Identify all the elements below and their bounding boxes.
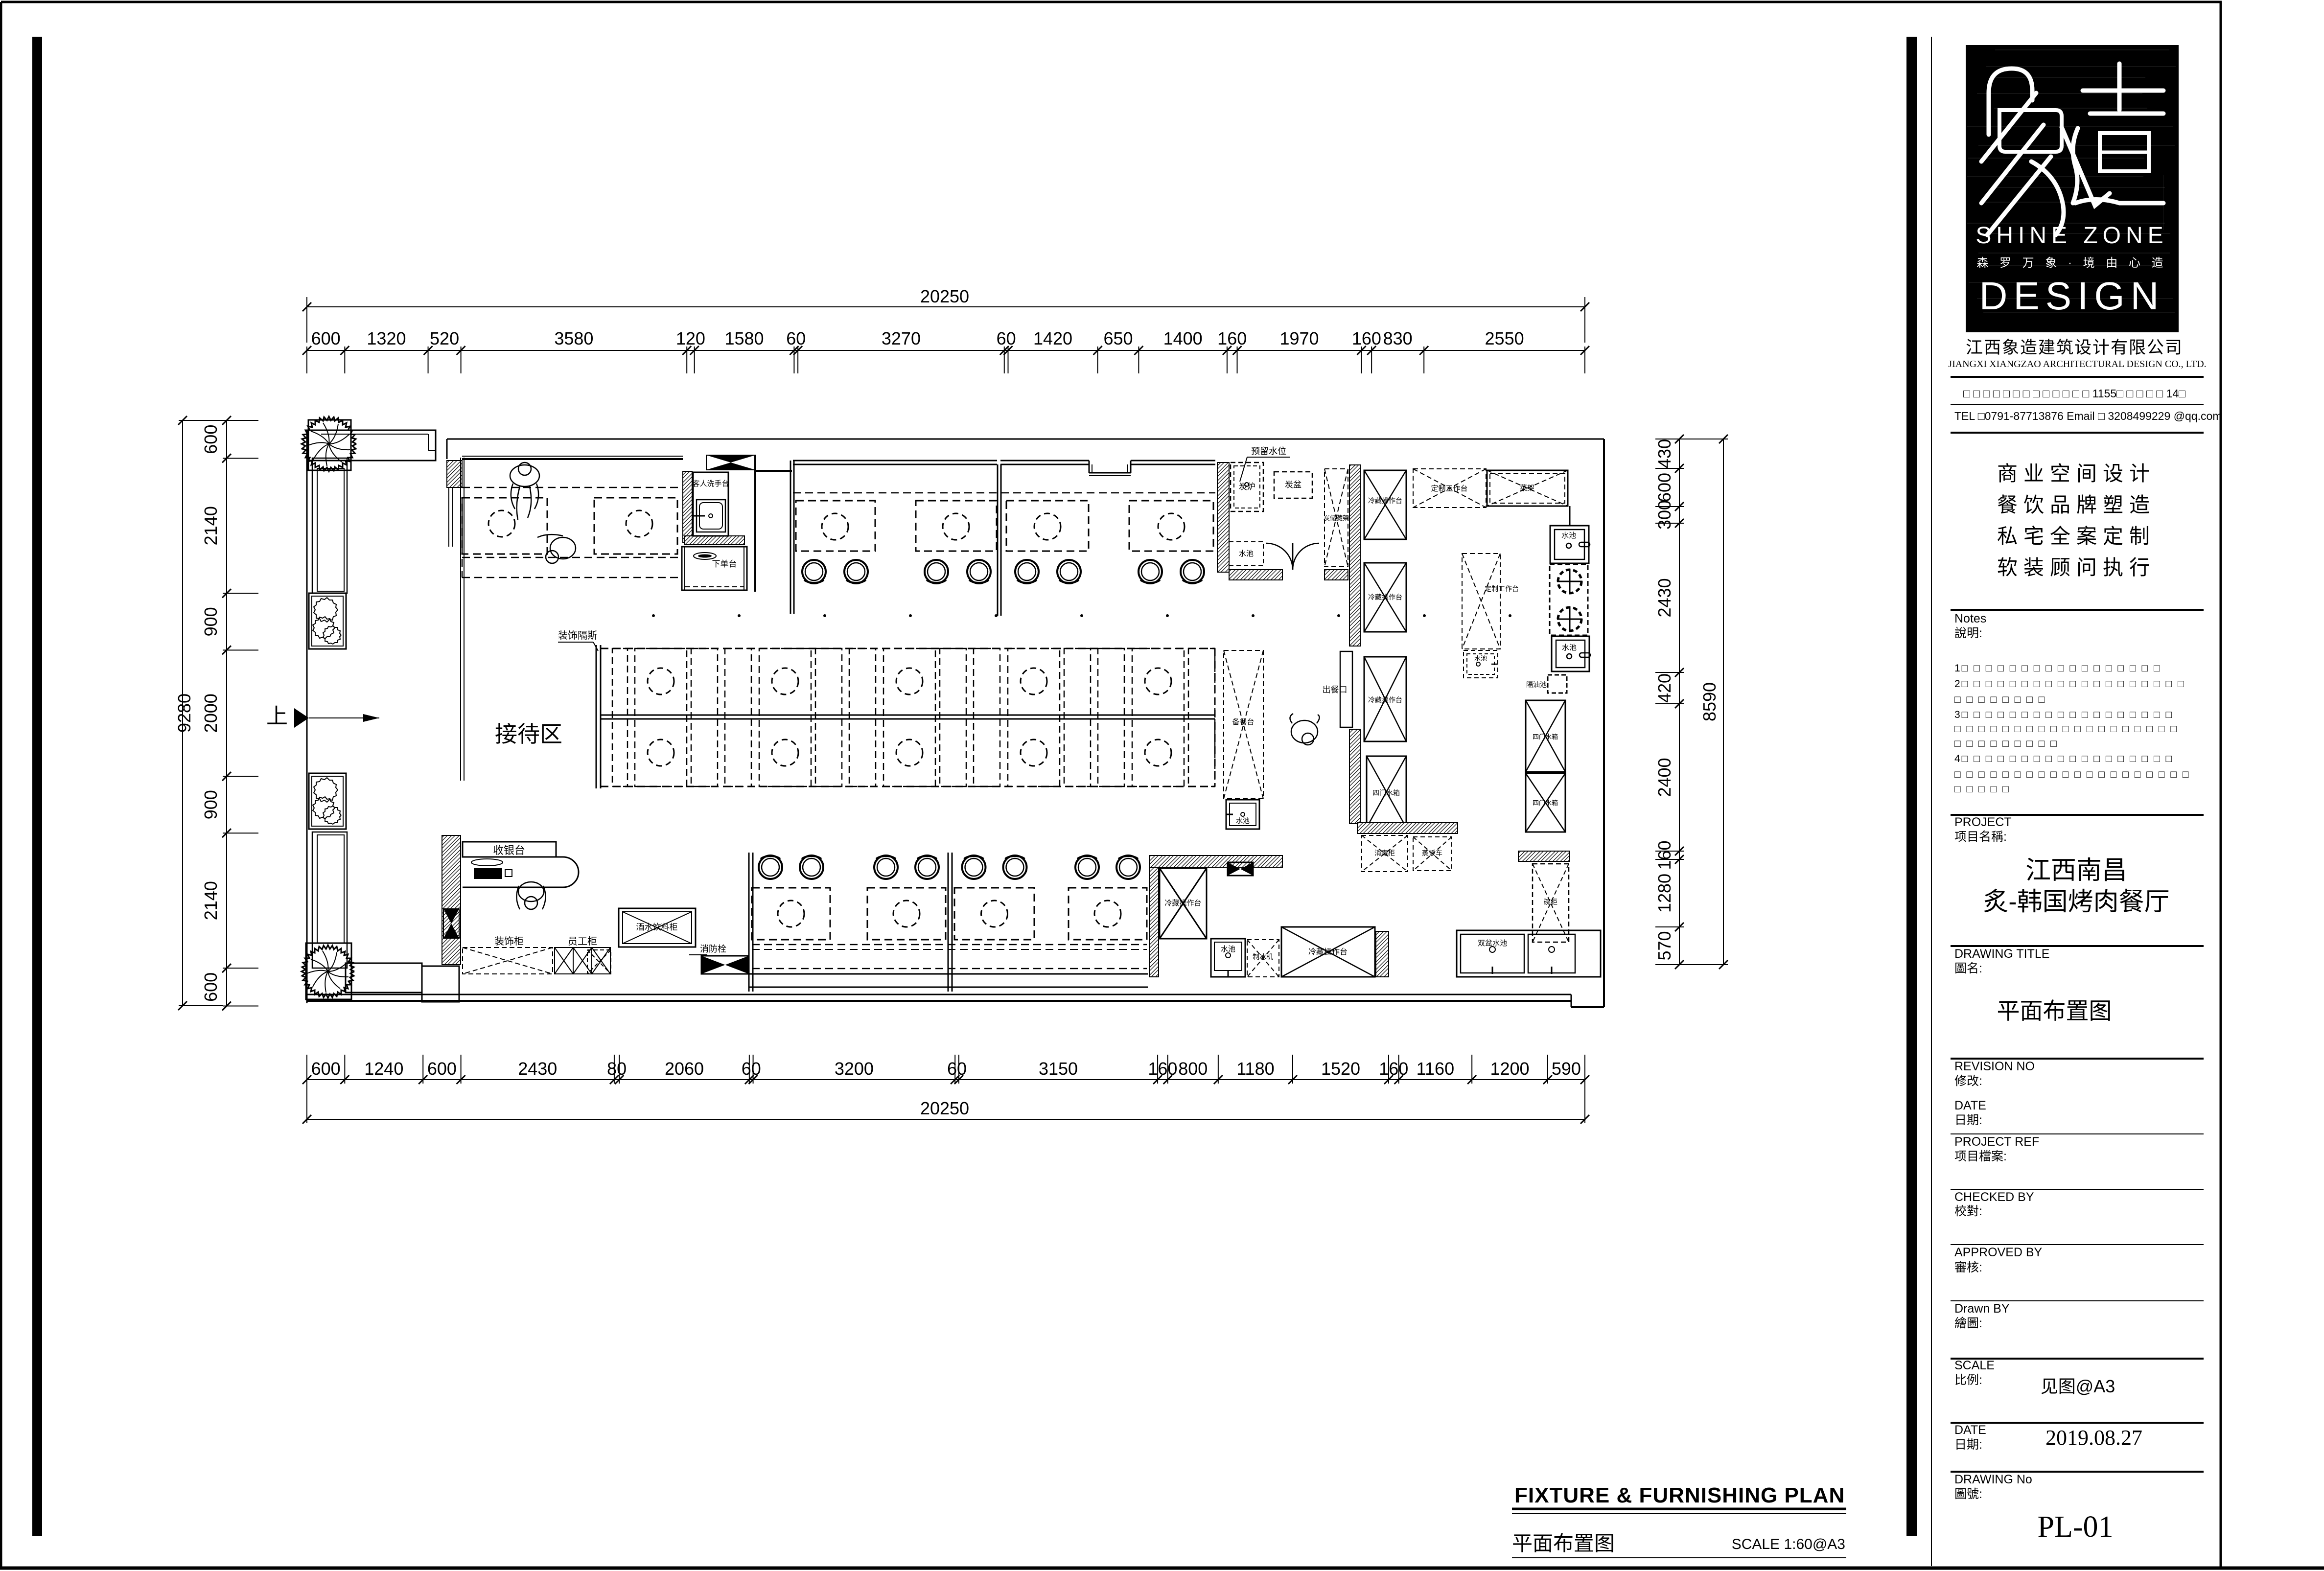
svg-text:520: 520 xyxy=(430,328,459,348)
svg-text:600: 600 xyxy=(1654,473,1674,502)
svg-text:下单台: 下单台 xyxy=(712,559,737,569)
svg-text:2430: 2430 xyxy=(518,1059,557,1079)
svg-text:圖號:: 圖號: xyxy=(1954,1487,1982,1501)
svg-text:20250: 20250 xyxy=(920,286,969,306)
svg-text:300: 300 xyxy=(1654,500,1674,530)
svg-text:1160: 1160 xyxy=(1417,1059,1454,1079)
svg-text:570: 570 xyxy=(1654,931,1674,960)
svg-text:水池: 水池 xyxy=(1561,531,1576,540)
svg-text:160: 160 xyxy=(1352,328,1381,348)
svg-text:830: 830 xyxy=(1383,328,1413,348)
svg-text:3270: 3270 xyxy=(882,328,921,348)
svg-text:SHINE ZONE: SHINE ZONE xyxy=(1975,223,2168,249)
svg-text:160: 160 xyxy=(1217,328,1247,348)
svg-text:900: 900 xyxy=(201,607,221,636)
svg-text:定制工作台: 定制工作台 xyxy=(1431,485,1467,493)
svg-text:800: 800 xyxy=(1178,1059,1208,1079)
svg-text:Drawn BY: Drawn BY xyxy=(1954,1302,2010,1316)
svg-text:1320: 1320 xyxy=(367,328,406,348)
svg-text:繪圖:: 繪圖: xyxy=(1954,1317,1982,1330)
svg-text:□ □ □ □ □ □ □ □ □ □ □ □ □ 1155: □ □ □ □ □ □ □ □ □ □ □ □ □ 1155□ □ □ □ □ … xyxy=(1963,387,2185,400)
svg-text:APPROVED BY: APPROVED BY xyxy=(1954,1246,2043,1259)
svg-text:炙-韩国烤肉餐厅: 炙-韩国烤肉餐厅 xyxy=(1983,888,2169,916)
svg-text:项目檔案:: 项目檔案: xyxy=(1954,1150,2007,1163)
svg-text:650: 650 xyxy=(1103,328,1133,348)
svg-text:软装顾问执行: 软装顾问执行 xyxy=(1997,556,2156,579)
svg-text:2000: 2000 xyxy=(201,693,221,733)
svg-text:装饰隔斯: 装饰隔斯 xyxy=(558,630,597,641)
svg-text:日期:: 日期: xyxy=(1954,1113,1982,1127)
svg-text:四门水箱: 四门水箱 xyxy=(1372,789,1400,797)
svg-text:蒸饭车: 蒸饭车 xyxy=(1422,849,1442,857)
svg-text:DATE: DATE xyxy=(1954,1423,1986,1437)
svg-text:餐饮品牌塑造: 餐饮品牌塑造 xyxy=(1997,493,2156,516)
svg-text:私宅全案定制: 私宅全案定制 xyxy=(1997,525,2156,548)
svg-text:3580: 3580 xyxy=(554,328,593,348)
svg-text:1180: 1180 xyxy=(1236,1059,1274,1079)
svg-text:备餐台: 备餐台 xyxy=(1232,718,1254,726)
svg-text:60: 60 xyxy=(742,1059,761,1079)
svg-text:420: 420 xyxy=(1654,673,1674,703)
svg-text:□ □ □ □ □ □ □ □ □ □ □ □ □ □ □: □ □ □ □ □ □ □ □ □ □ □ □ □ □ □ □ □ □ □ xyxy=(1954,723,2178,735)
svg-text:FIXTURE & FURNISHING PLAN: FIXTURE & FURNISHING PLAN xyxy=(1514,1483,1845,1507)
svg-text:PL-01: PL-01 xyxy=(2038,1510,2114,1544)
svg-text:2400: 2400 xyxy=(1654,758,1674,797)
svg-text:冷藏操作台: 冷藏操作台 xyxy=(1308,947,1348,956)
svg-text:江西象造建筑设计有限公司: 江西象造建筑设计有限公司 xyxy=(1966,338,2183,357)
svg-text:9280: 9280 xyxy=(174,693,194,733)
svg-text:CHECKED BY: CHECKED BY xyxy=(1954,1190,2034,1204)
svg-text:60: 60 xyxy=(786,328,806,348)
svg-text:江西南昌: 江西南昌 xyxy=(2025,856,2127,885)
svg-text:□ □ □ □ □ □ □ □ □: □ □ □ □ □ □ □ □ □ xyxy=(1954,738,2058,749)
svg-text:隔油池: 隔油池 xyxy=(1526,681,1547,689)
svg-text:2□ □ □ □ □ □ □ □ □ □ □ □ □ □ □: 2□ □ □ □ □ □ □ □ □ □ □ □ □ □ □ □ □ □ □ xyxy=(1954,678,2185,690)
svg-text:2550: 2550 xyxy=(1485,328,1524,348)
svg-text:1400: 1400 xyxy=(1163,328,1203,348)
svg-text:水池: 水池 xyxy=(1221,945,1235,953)
svg-text:1200: 1200 xyxy=(1490,1059,1529,1079)
svg-text:600: 600 xyxy=(201,972,221,1002)
svg-text:冷藏操作台: 冷藏操作台 xyxy=(1368,696,1402,704)
svg-text:出餐口: 出餐口 xyxy=(1323,685,1348,694)
svg-text:消毒柜: 消毒柜 xyxy=(1374,849,1395,857)
svg-text:DRAWING No: DRAWING No xyxy=(1954,1473,2032,1486)
svg-text:3□ □ □ □ □ □ □ □ □ □ □ □ □ □ □: 3□ □ □ □ □ □ □ □ □ □ □ □ □ □ □ □ □ □ xyxy=(1954,709,2173,720)
svg-text:平面布置图: 平面布置图 xyxy=(1997,998,2112,1024)
svg-text:□ □ □ □ □: □ □ □ □ □ xyxy=(1954,784,2010,795)
svg-text:商业空间设计: 商业空间设计 xyxy=(1997,462,2156,485)
svg-text:冷藏操作台: 冷藏操作台 xyxy=(1368,497,1402,505)
svg-text:600: 600 xyxy=(311,328,341,348)
svg-text:600: 600 xyxy=(311,1059,341,1079)
svg-text:上: 上 xyxy=(266,704,288,728)
svg-text:平面布置图: 平面布置图 xyxy=(1512,1532,1615,1555)
svg-text:1240: 1240 xyxy=(364,1059,403,1079)
svg-text:590: 590 xyxy=(1552,1059,1581,1079)
svg-text:制冰机: 制冰机 xyxy=(1253,953,1273,961)
svg-text:600: 600 xyxy=(201,425,221,454)
svg-text:1970: 1970 xyxy=(1279,328,1319,348)
svg-text:120: 120 xyxy=(676,328,705,348)
svg-text:比例:: 比例: xyxy=(1954,1373,1982,1387)
svg-text:1520: 1520 xyxy=(1321,1059,1360,1079)
svg-text:四门水箱: 四门水箱 xyxy=(1533,733,1558,740)
svg-text:碗柜: 碗柜 xyxy=(1544,898,1557,906)
svg-text:消防栓: 消防栓 xyxy=(700,944,726,954)
svg-text:160: 160 xyxy=(1148,1059,1177,1079)
svg-text:炭储藏架: 炭储藏架 xyxy=(1324,514,1349,522)
svg-text:日期:: 日期: xyxy=(1954,1438,1982,1452)
svg-text:水池: 水池 xyxy=(1239,550,1254,558)
svg-text:2430: 2430 xyxy=(1654,578,1674,617)
svg-text:60: 60 xyxy=(947,1059,967,1079)
svg-text:3150: 3150 xyxy=(1039,1059,1078,1079)
svg-text:项目名稱:: 项目名稱: xyxy=(1954,830,2007,844)
svg-text:1280: 1280 xyxy=(1654,874,1674,913)
svg-text:接待区: 接待区 xyxy=(495,721,562,747)
svg-text:DATE: DATE xyxy=(1954,1099,1986,1112)
svg-text:60: 60 xyxy=(997,328,1016,348)
svg-text:3200: 3200 xyxy=(835,1059,874,1079)
svg-text:SCALE 1:60@A3: SCALE 1:60@A3 xyxy=(1732,1536,1845,1552)
svg-text:430: 430 xyxy=(1654,439,1674,468)
svg-text:见图@A3: 见图@A3 xyxy=(2041,1376,2115,1396)
svg-text:菜架: 菜架 xyxy=(1520,484,1534,492)
svg-text:TEL □0791-87713876 Email □ 32: TEL □0791-87713876 Email □ 3208499229 @q… xyxy=(1954,410,2222,422)
svg-text:装饰柜: 装饰柜 xyxy=(494,936,524,947)
svg-text:酒水饮料柜: 酒水饮料柜 xyxy=(636,923,678,932)
svg-text:JIANGXI XIANGZAO ARCHITECTURAL: JIANGXI XIANGZAO ARCHITECTURAL DESIGN CO… xyxy=(1948,359,2206,370)
svg-text:水池: 水池 xyxy=(1236,817,1250,825)
svg-text:20250: 20250 xyxy=(920,1098,969,1118)
svg-text:四门水箱: 四门水箱 xyxy=(1533,799,1558,807)
svg-text:2019.08.27: 2019.08.27 xyxy=(2045,1426,2142,1450)
svg-text:DRAWING TITLE: DRAWING TITLE xyxy=(1954,947,2049,961)
svg-text:REVISION NO: REVISION NO xyxy=(1954,1060,2035,1073)
svg-text:□ □ □ □ □ □ □ □: □ □ □ □ □ □ □ □ xyxy=(1954,694,2046,705)
svg-text:2140: 2140 xyxy=(201,881,221,920)
svg-text:冷藏操作台: 冷藏操作台 xyxy=(1164,899,1201,907)
svg-text:160: 160 xyxy=(1654,840,1674,870)
svg-text:炭盆: 炭盆 xyxy=(1285,480,1301,489)
svg-text:PROJECT REF: PROJECT REF xyxy=(1954,1135,2039,1149)
svg-text:员工柜: 员工柜 xyxy=(568,936,597,947)
svg-text:2060: 2060 xyxy=(665,1059,704,1079)
svg-text:水池: 水池 xyxy=(1562,644,1577,652)
svg-text:1580: 1580 xyxy=(724,328,764,348)
svg-text:2140: 2140 xyxy=(201,506,221,545)
svg-text:160: 160 xyxy=(1379,1059,1408,1079)
svg-text:预留水位: 预留水位 xyxy=(1251,446,1286,456)
svg-text:審核:: 審核: xyxy=(1954,1261,1982,1274)
svg-text:修改:: 修改: xyxy=(1954,1074,1982,1088)
svg-text:900: 900 xyxy=(201,790,221,819)
svg-text:收银台: 收银台 xyxy=(493,844,525,856)
svg-text:森 罗 万 象 · 境 由 心 造: 森 罗 万 象 · 境 由 心 造 xyxy=(1976,256,2167,270)
svg-text:客人洗手台: 客人洗手台 xyxy=(692,480,729,488)
svg-text:1420: 1420 xyxy=(1033,328,1072,348)
svg-text:PROJECT: PROJECT xyxy=(1954,815,2012,829)
svg-text:双盆水池: 双盆水池 xyxy=(1478,939,1507,947)
svg-text:DESIGN: DESIGN xyxy=(1979,274,2165,318)
svg-text:8590: 8590 xyxy=(1699,682,1720,721)
svg-text:□ □ □ □ □ □ □ □ □ □ □ □ □ □ □: □ □ □ □ □ □ □ □ □ □ □ □ □ □ □ □ □ □ □ □ xyxy=(1954,769,2190,780)
svg-text:冷藏操作台: 冷藏操作台 xyxy=(1368,593,1402,601)
svg-text:1□ □ □ □ □ □ □ □ □ □ □ □ □ □ □: 1□ □ □ □ □ □ □ □ □ □ □ □ □ □ □ □ □ xyxy=(1954,663,2161,674)
svg-text:SCALE: SCALE xyxy=(1954,1359,1995,1372)
svg-text:圖名:: 圖名: xyxy=(1954,962,1982,975)
svg-text:4□ □ □ □ □ □ □ □ □ □ □ □ □ □ □: 4□ □ □ □ □ □ □ □ □ □ □ □ □ □ □ □ □ □ xyxy=(1954,753,2173,764)
svg-text:水池: 水池 xyxy=(1474,655,1487,662)
svg-text:定制工作台: 定制工作台 xyxy=(1485,585,1519,593)
svg-text:校對:: 校對: xyxy=(1954,1204,1982,1218)
svg-text:600: 600 xyxy=(427,1059,457,1079)
svg-text:Notes: Notes xyxy=(1954,612,1986,625)
svg-text:80: 80 xyxy=(607,1059,627,1079)
svg-text:說明:: 說明: xyxy=(1954,626,1982,640)
